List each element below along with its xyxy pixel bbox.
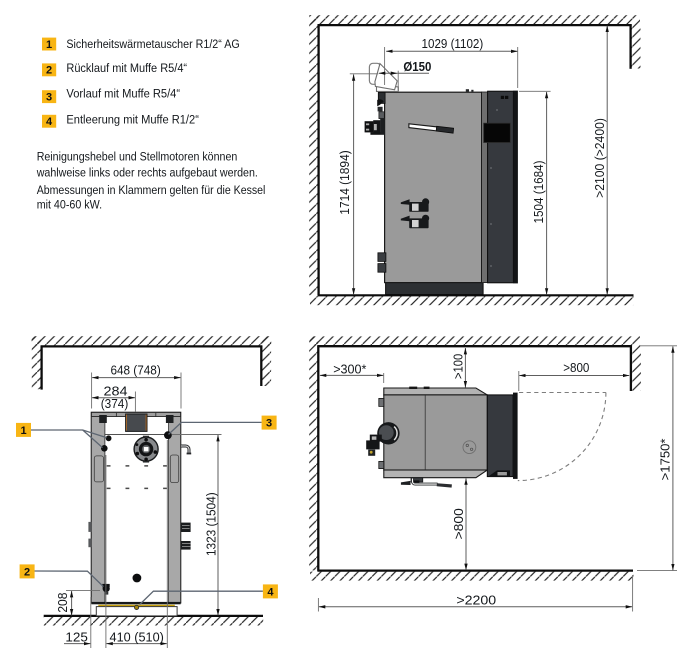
svg-text:410 (510): 410 (510) [110,629,164,644]
svg-text:>800: >800 [563,360,589,375]
svg-text:125: 125 [65,629,88,644]
svg-text:>2200: >2200 [456,593,496,608]
svg-text:Sicherheitswärmetauscher R1/2“: Sicherheitswärmetauscher R1/2“ AG [66,37,239,51]
svg-text:Vorlauf mit Muffe R5/4“: Vorlauf mit Muffe R5/4“ [66,86,180,100]
svg-text:1: 1 [20,425,26,437]
svg-text:4: 4 [267,586,274,598]
svg-text:3: 3 [46,92,52,104]
svg-text:648 (748): 648 (748) [110,362,160,377]
svg-text:3: 3 [266,418,272,430]
svg-text:1323 (1504): 1323 (1504) [203,492,218,556]
svg-text:Reinigungshebel und Stellmotor: Reinigungshebel und Stellmotoren können [37,149,238,163]
svg-text:1504 (1684): 1504 (1684) [531,160,546,223]
svg-text:>1750*: >1750* [657,438,672,480]
svg-text:Abmessungen in Klammern gelten: Abmessungen in Klammern gelten für die K… [37,183,266,197]
svg-text:Rücklauf mit Muffe R5/4“: Rücklauf mit Muffe R5/4“ [66,61,187,75]
svg-text:>300*: >300* [333,362,366,377]
svg-text:>100: >100 [451,354,466,379]
svg-text:2: 2 [24,566,30,578]
svg-text:1029 (1102): 1029 (1102) [422,36,484,51]
svg-text:(374): (374) [101,396,129,411]
svg-text:Entleerung mit Muffe R1/2“: Entleerung mit Muffe R1/2“ [66,112,199,126]
svg-text:208: 208 [55,593,70,613]
svg-text:1: 1 [46,39,52,51]
svg-text:>800: >800 [451,508,466,539]
svg-text:4: 4 [46,116,53,128]
svg-text:wahlweise links oder rechts au: wahlweise links oder rechts aufgebaut we… [36,166,258,180]
svg-text:>2100 (>2400): >2100 (>2400) [592,118,607,198]
svg-text:Ø150: Ø150 [403,59,431,74]
svg-text:1714 (1894): 1714 (1894) [337,150,352,214]
svg-text:2: 2 [46,65,52,77]
svg-text:mit 40-60 kW.: mit 40-60 kW. [37,198,102,212]
